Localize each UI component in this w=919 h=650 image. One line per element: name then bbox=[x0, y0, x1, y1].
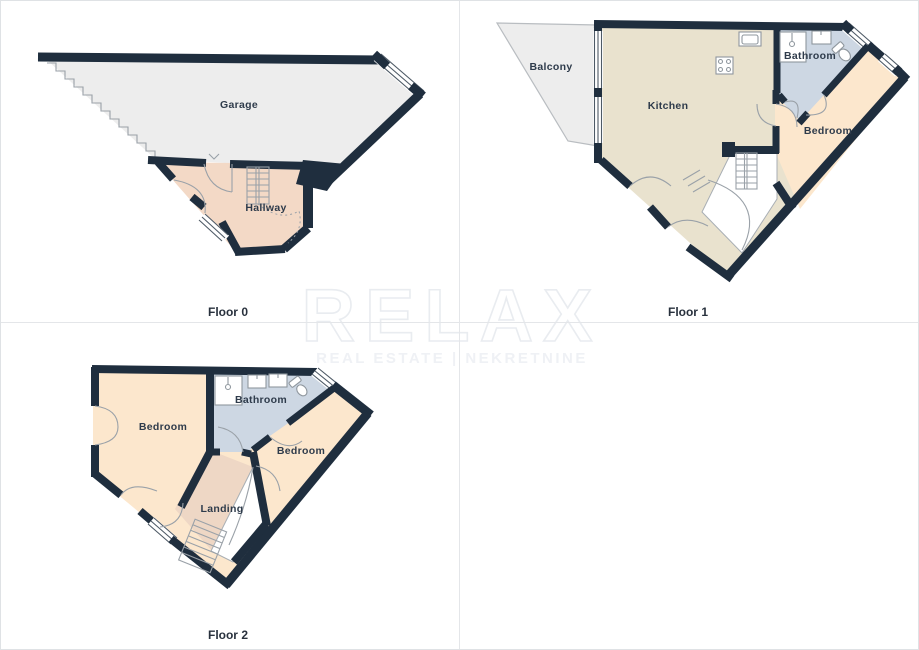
watermark-title: RELAX bbox=[302, 274, 603, 357]
burner bbox=[719, 60, 723, 64]
floorplan-sheet: RELAX REAL ESTATE | NEKRETNINE bbox=[0, 0, 919, 650]
floor-0-label: Floor 0 bbox=[208, 305, 248, 319]
sink-basin bbox=[742, 35, 758, 44]
room-label-garage: Garage bbox=[220, 99, 258, 111]
room-label-balcony: Balcony bbox=[530, 61, 573, 73]
wall bbox=[843, 23, 851, 31]
wall bbox=[235, 249, 285, 252]
shower-head bbox=[790, 42, 795, 47]
room-label-bathroom-f2: Bathroom bbox=[235, 394, 287, 406]
wall bbox=[230, 164, 311, 166]
floorplan-canvas: RELAX REAL ESTATE | NEKRETNINE bbox=[0, 0, 919, 650]
stove-icon bbox=[716, 57, 733, 74]
floor-1-label: Floor 1 bbox=[668, 305, 708, 319]
watermark-subtitle: REAL ESTATE | NEKRETNINE bbox=[316, 350, 588, 367]
room-label-hallway: Hallway bbox=[245, 202, 286, 214]
floor-2-label: Floor 2 bbox=[208, 628, 248, 642]
room-label-kitchen: Kitchen bbox=[648, 100, 689, 112]
burner bbox=[727, 68, 731, 72]
shower-head bbox=[226, 385, 231, 390]
wall bbox=[92, 369, 317, 372]
room-label-landing: Landing bbox=[201, 503, 244, 515]
burner bbox=[719, 68, 723, 72]
room-label-bedroom-f1: Bedroom bbox=[804, 125, 852, 137]
room-label-bathroom-f1: Bathroom bbox=[784, 50, 836, 62]
burner bbox=[727, 60, 731, 64]
wall bbox=[148, 160, 206, 163]
wall bbox=[594, 24, 849, 27]
room-label-bedroom1-f2: Bedroom bbox=[139, 421, 187, 433]
watermark: RELAX REAL ESTATE | NEKRETNINE bbox=[302, 274, 603, 367]
wall-block bbox=[722, 142, 735, 157]
wall bbox=[38, 57, 381, 60]
room-label-bedroom2-f2: Bedroom bbox=[277, 445, 325, 457]
wall bbox=[779, 95, 785, 102]
